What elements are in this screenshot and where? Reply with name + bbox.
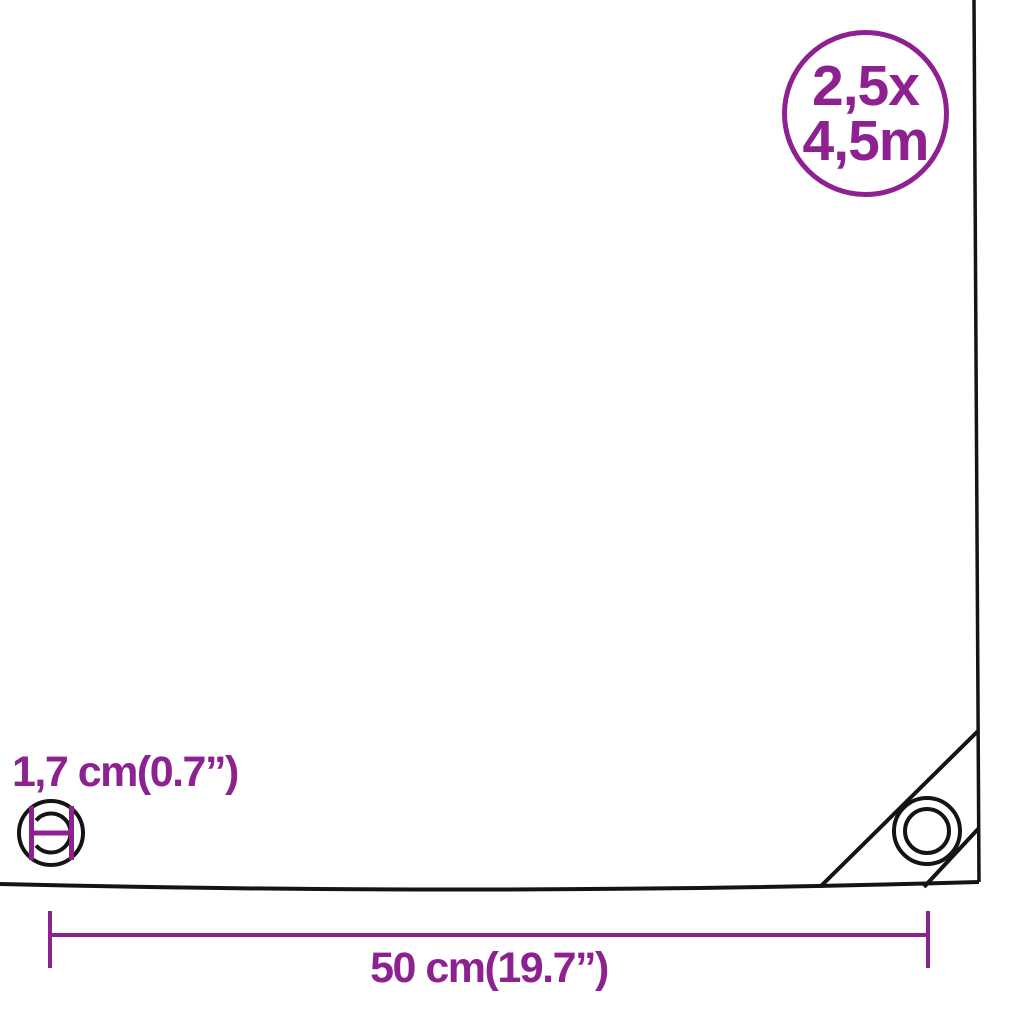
corner-seam-line: [820, 731, 978, 887]
corner-eyelet-icon: [894, 798, 960, 864]
size-badge: 2,5x 4,5m: [782, 30, 949, 197]
size-badge-line1: 2,5x: [812, 59, 919, 114]
corner-eyelet-inner-ring: [905, 809, 949, 853]
product-dimension-diagram: 2,5x 4,5m 1,7 cm(0.7”) 50 cm(19.7”): [0, 0, 1024, 1024]
tarp-bottom-edge-line: [0, 882, 979, 890]
eyelet-detail-icon: [19, 801, 83, 865]
size-badge-line2: 4,5m: [803, 114, 929, 169]
eyelet-diameter-label: 1,7 cm(0.7”): [12, 748, 238, 797]
tarp-right-edge-line: [974, 0, 979, 882]
edge-width-label: 50 cm(19.7”): [50, 944, 928, 993]
